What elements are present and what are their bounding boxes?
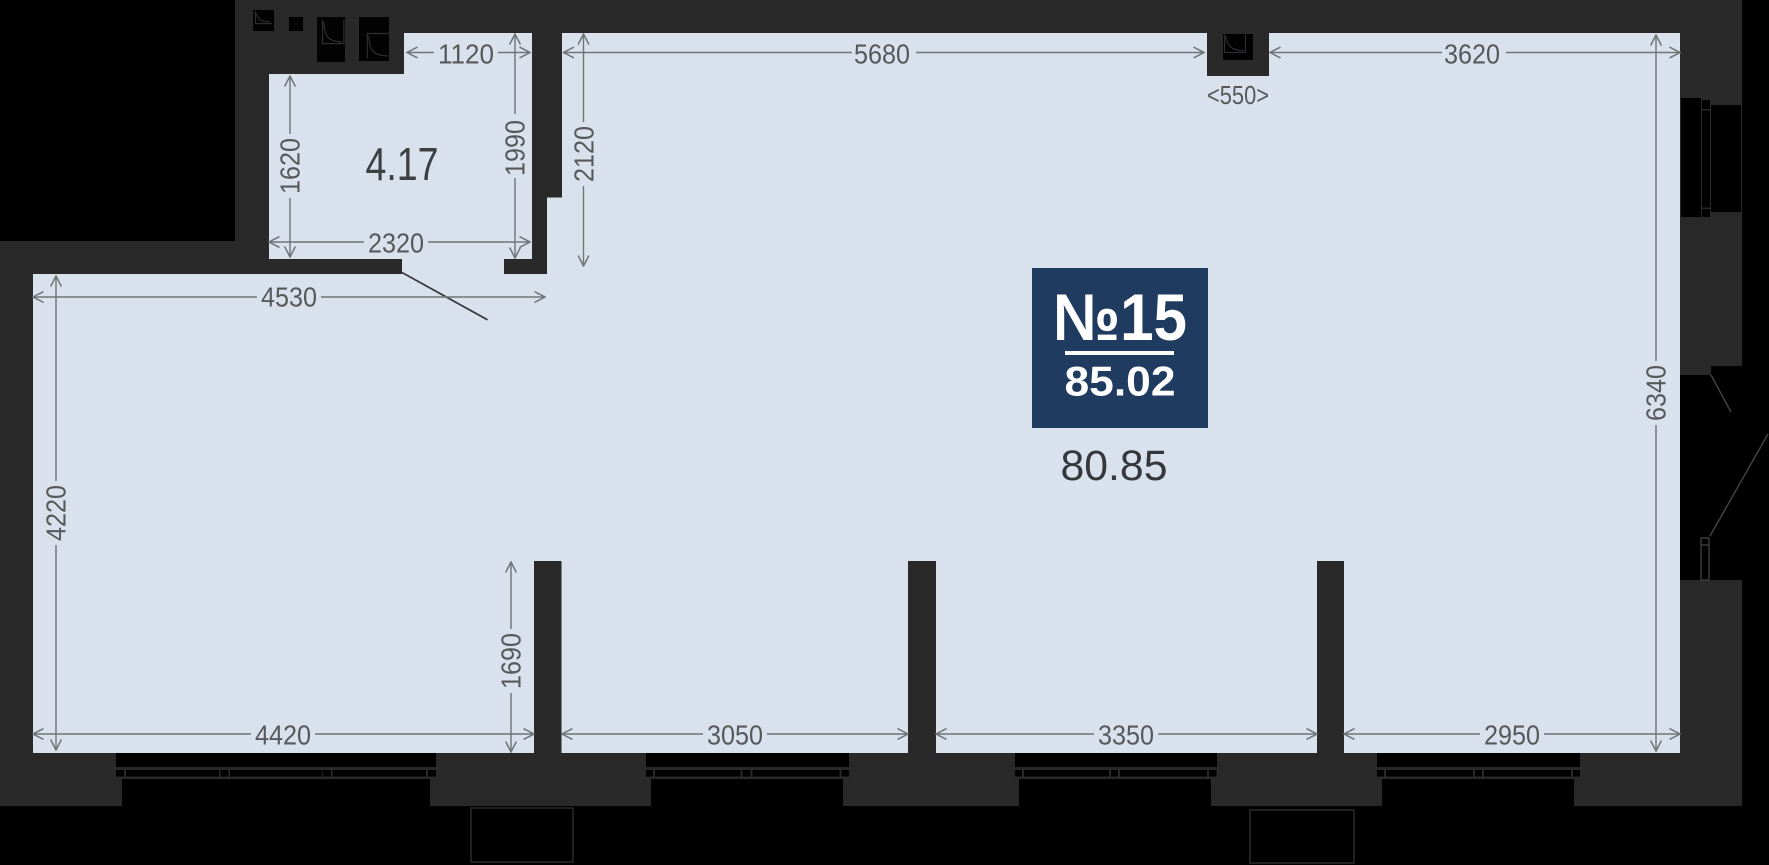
svg-text:4220: 4220 xyxy=(41,485,72,541)
svg-text:1120: 1120 xyxy=(438,39,494,70)
svg-text:№15: №15 xyxy=(1053,280,1187,354)
svg-text:4.17: 4.17 xyxy=(366,138,439,190)
svg-text:1690: 1690 xyxy=(496,633,527,689)
svg-text:4530: 4530 xyxy=(261,282,317,313)
svg-text:3050: 3050 xyxy=(707,720,763,751)
svg-text:3350: 3350 xyxy=(1098,720,1154,751)
svg-text:80.85: 80.85 xyxy=(1061,442,1168,490)
svg-text:5680: 5680 xyxy=(854,39,910,70)
svg-text:2120: 2120 xyxy=(569,126,600,182)
svg-text:85.02: 85.02 xyxy=(1065,358,1176,405)
svg-text:<550>: <550> xyxy=(1207,80,1269,110)
svg-text:6340: 6340 xyxy=(1641,365,1672,421)
svg-text:3620: 3620 xyxy=(1444,39,1500,70)
svg-text:4420: 4420 xyxy=(255,720,311,751)
svg-text:1620: 1620 xyxy=(275,138,306,194)
svg-text:1990: 1990 xyxy=(500,120,531,176)
svg-text:2950: 2950 xyxy=(1484,720,1540,751)
svg-text:2320: 2320 xyxy=(368,228,424,259)
